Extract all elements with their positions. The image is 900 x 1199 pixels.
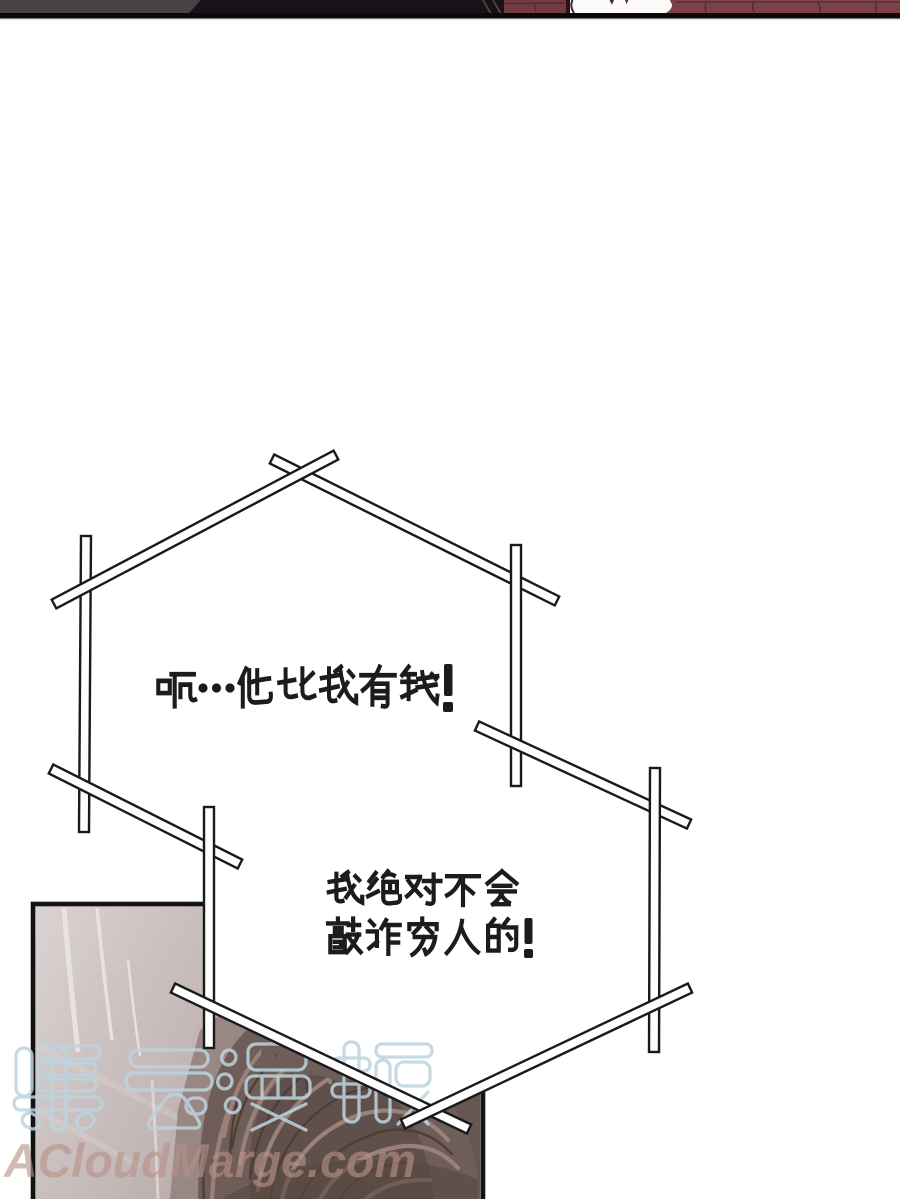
svg-text:ACloudMarge.com: ACloudMarge.com: [3, 1134, 416, 1187]
